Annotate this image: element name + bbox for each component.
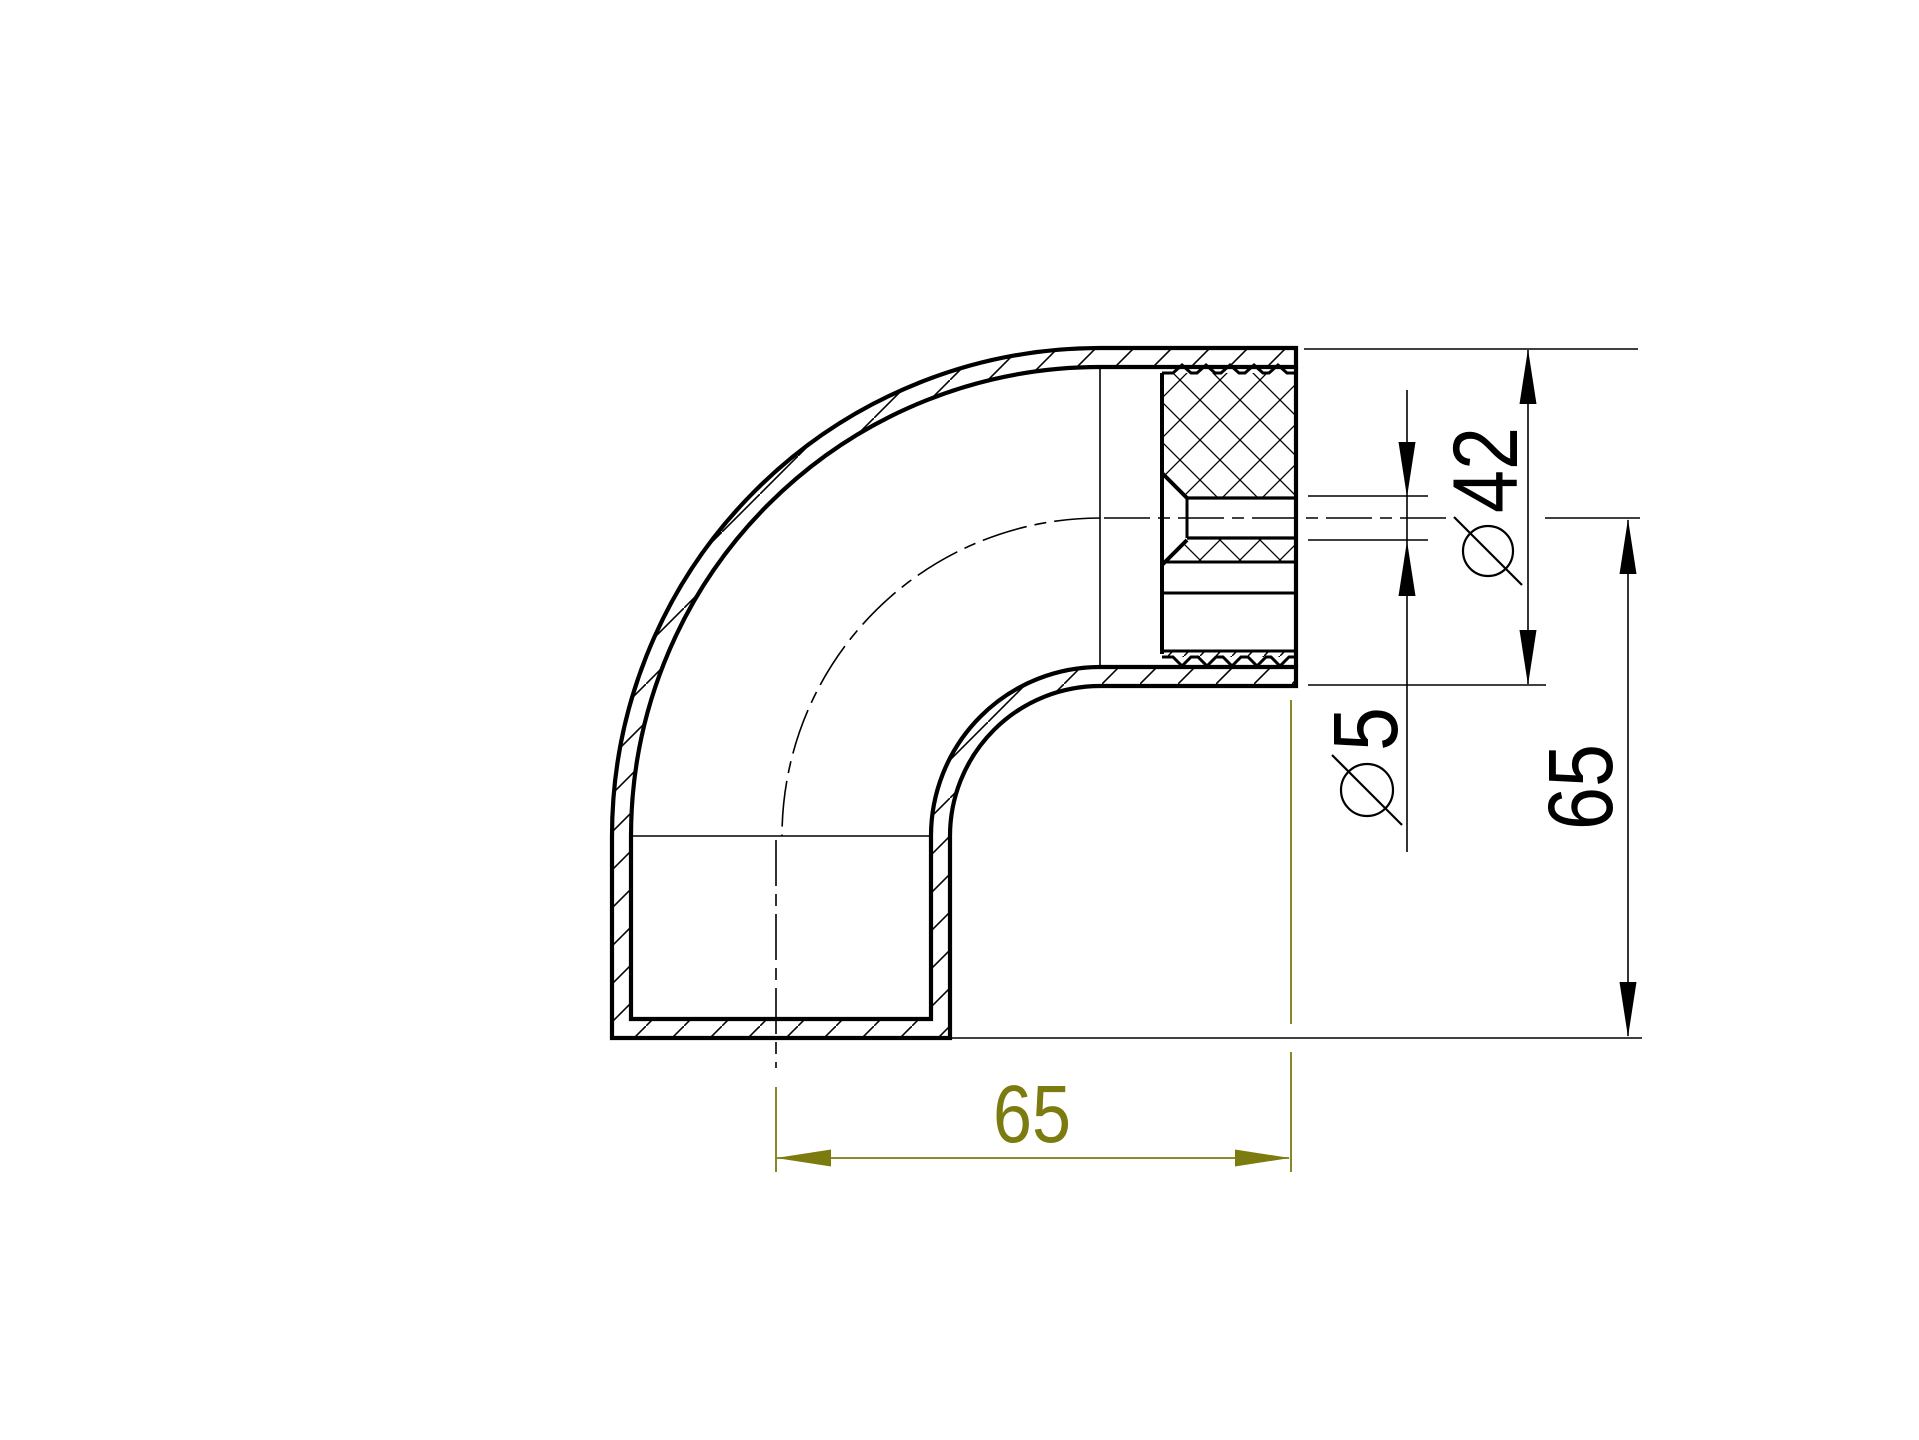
drawing-page: 42 5 65 65 bbox=[0, 0, 1919, 1440]
insert-band-lower bbox=[1162, 593, 1296, 651]
dim-label-65v: 65 bbox=[1530, 744, 1632, 830]
drawing-background bbox=[0, 0, 1919, 1440]
dim-value-dia42: 42 bbox=[1435, 427, 1537, 513]
insert-upper-knurl bbox=[1162, 373, 1296, 498]
dim-value-dia5: 5 bbox=[1315, 707, 1417, 751]
technical-drawing-canvas: 42 5 65 65 bbox=[0, 0, 1919, 1440]
dim-value-65h: 65 bbox=[993, 1069, 1071, 1160]
insert-band-upper bbox=[1162, 562, 1296, 593]
dim-value-65v: 65 bbox=[1530, 744, 1632, 830]
